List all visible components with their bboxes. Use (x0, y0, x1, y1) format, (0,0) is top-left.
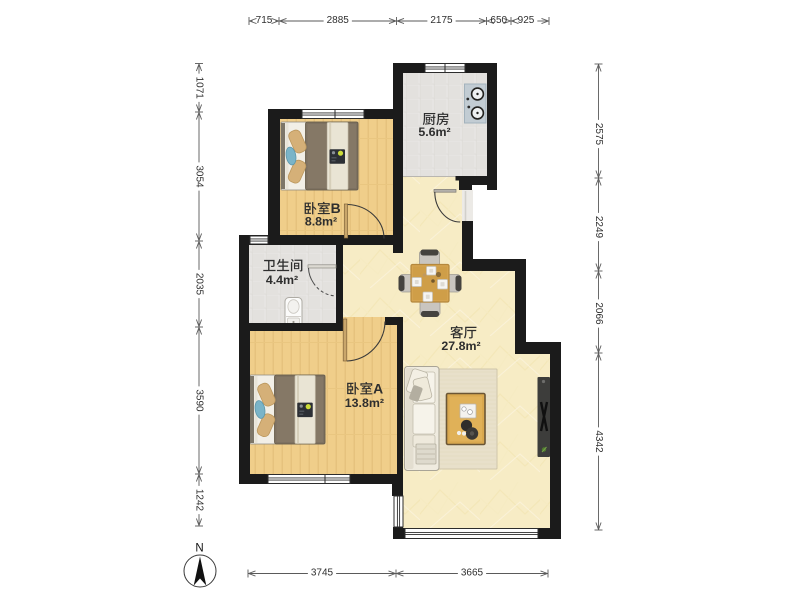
svg-text:2249: 2249 (593, 216, 604, 239)
svg-text:2035: 2035 (194, 273, 205, 296)
svg-text:1242: 1242 (194, 489, 205, 512)
svg-text:2175: 2175 (430, 15, 453, 26)
svg-text:A: A (373, 380, 383, 396)
svg-text:27.8m²: 27.8m² (441, 339, 480, 353)
svg-text:13.8m²: 13.8m² (345, 396, 384, 410)
svg-text:2066: 2066 (593, 302, 604, 325)
svg-text:N: N (195, 543, 203, 555)
svg-text:3054: 3054 (194, 165, 205, 188)
svg-text:5.6m²: 5.6m² (418, 125, 450, 139)
svg-text:650: 650 (490, 15, 507, 26)
svg-text:3745: 3745 (311, 568, 334, 579)
svg-text:2575: 2575 (593, 123, 604, 146)
svg-text:1071: 1071 (194, 77, 205, 100)
svg-text:925: 925 (518, 15, 535, 26)
svg-text:8.8m²: 8.8m² (305, 215, 337, 229)
svg-text:4342: 4342 (593, 430, 604, 453)
svg-text:3590: 3590 (194, 389, 205, 412)
svg-text:3665: 3665 (461, 568, 484, 579)
svg-text:715: 715 (256, 15, 273, 26)
svg-text:4.4m²: 4.4m² (266, 273, 298, 287)
svg-text:2885: 2885 (327, 15, 350, 26)
